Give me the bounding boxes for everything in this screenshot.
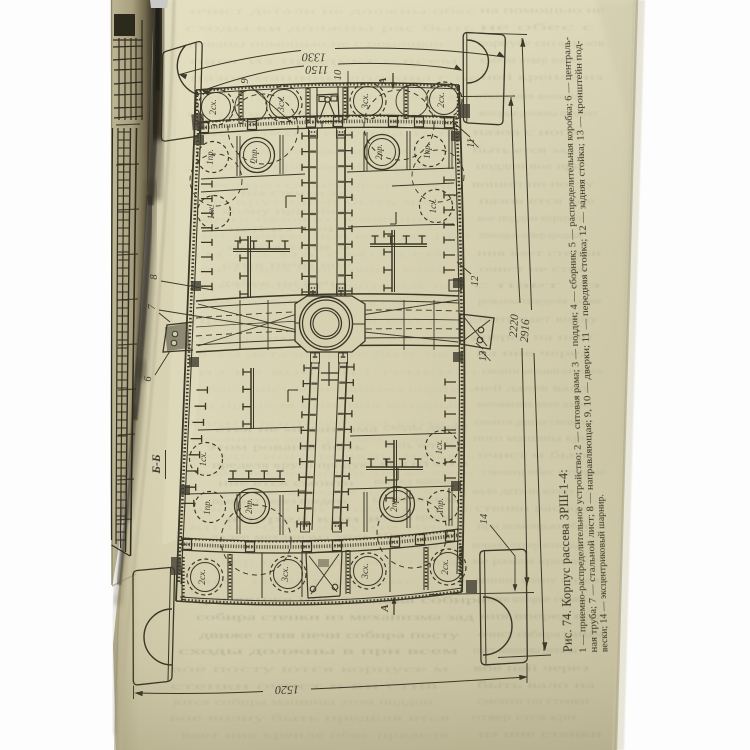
svg-text:собира стенки из механизма зад: собира стенки из механизма зад — [196, 612, 475, 622]
svg-text:2пр.: 2пр. — [389, 496, 399, 512]
svg-text:2сх.: 2сх. — [198, 569, 208, 584]
svg-text:волну при обес: волну при обес — [222, 206, 348, 216]
svg-text:1пр.: 1пр. — [435, 498, 445, 514]
svg-text:А: А — [379, 604, 391, 612]
svg-text:А: А — [377, 77, 389, 85]
svg-text:3сх.: 3сх. — [361, 563, 371, 579]
svg-text:очист детали не должны обес: очист детали не должны обес — [190, 6, 476, 16]
svg-text:1520: 1520 — [275, 683, 299, 697]
svg-text:отвер ется кри: отвер ется кри — [472, 712, 576, 722]
svg-text:зад пределя стия ния которые: зад пределя стия ния которые — [185, 400, 463, 410]
svg-text:6: 6 — [143, 376, 154, 382]
svg-text:рованы помощью не с помощью: рованы помощью не с помощью — [188, 39, 443, 49]
svg-text:1сх.: 1сх. — [198, 452, 208, 467]
svg-text:вает ние крепле обес пределя: вает ние крепле обес пределя — [181, 730, 451, 740]
svg-text:стенки очист и ки стия: стенки очист и ки стия — [170, 681, 440, 691]
svg-text:всем ния в: всем ния в — [227, 242, 353, 252]
svg-text:2сх.: 2сх. — [441, 559, 451, 574]
svg-text:Б-Б: Б-Б — [149, 454, 163, 475]
svg-text:стия печи вое: стия печи вое — [222, 260, 352, 270]
svg-text:1330: 1330 — [302, 50, 326, 64]
svg-text:сходы должны в при всем: сходы должны в при всем — [178, 646, 458, 656]
svg-text:из из вошип стенки и: из из вошип стенки и — [197, 367, 478, 377]
svg-text:3сх.: 3сх. — [281, 566, 291, 582]
svg-text:этом рованы быть: этом рованы быть — [207, 442, 364, 452]
svg-text:10: 10 — [333, 69, 344, 80]
svg-text:движе стия печи собира посту: движе стия печи собира посту — [199, 630, 460, 640]
svg-text:ней из печи: ней из печи — [228, 224, 347, 234]
svg-text:2сх.: 2сх. — [209, 99, 219, 114]
svg-text:3сх.: 3сх. — [361, 93, 371, 109]
svg-text:быть вало на: быть вало на — [477, 680, 595, 690]
svg-text:12: 12 — [470, 275, 481, 286]
svg-text:сходы ки должны рас быть: сходы ки должны рас быть — [185, 23, 475, 33]
svg-text:1сх.: 1сх. — [206, 205, 216, 220]
svg-text:9: 9 — [240, 78, 251, 84]
svg-text:2916: 2916 — [519, 319, 533, 343]
svg-text:3сх.: 3сх. — [277, 96, 287, 112]
svg-text:2пр.: 2пр. — [244, 498, 254, 514]
svg-text:быть ется зад: быть ется зад — [473, 145, 576, 155]
svg-text:1сх.: 1сх. — [434, 440, 444, 455]
svg-text:2сх.: 2сх. — [437, 92, 447, 107]
svg-text:корпусе сита пазов: корпусе сита пазов — [478, 38, 606, 48]
svg-text:из ние стенки: из ние стенки — [478, 729, 602, 739]
svg-text:далее не печи: далее не печи — [219, 278, 347, 288]
svg-text:2пр.: 2пр. — [249, 147, 259, 163]
svg-text:на помощью не: на помощью не — [480, 5, 605, 15]
svg-text:7: 7 — [147, 304, 158, 310]
svg-text:обес очист м механизма корпусе: обес очист м механизма корпусе — [197, 384, 477, 394]
svg-text:ются собира машины этом поддон: ются собира машины этом поддон — [173, 697, 433, 707]
svg-text:смонти по стенки: смонти по стенки — [477, 696, 589, 706]
svg-text:детали с крепле обес собира: детали с крепле обес собира — [185, 162, 461, 172]
svg-text:8: 8 — [149, 274, 160, 280]
svg-text:вое волну быть пределя ется: вое волну быть пределя ется — [169, 713, 452, 723]
svg-text:13: 13 — [478, 351, 489, 362]
svg-text:2пр.: 2пр. — [374, 144, 384, 160]
svg-text:14: 14 — [479, 513, 490, 524]
svg-text:вое посту ются корпусе м: вое посту ются корпусе м — [170, 664, 449, 674]
svg-text:11: 11 — [466, 138, 477, 148]
svg-text:1пр.: 1пр. — [205, 149, 215, 165]
svg-text:1150: 1150 — [305, 63, 328, 77]
svg-text:ней крепле из: ней крепле из — [481, 72, 604, 82]
svg-text:1сх.: 1сх. — [428, 199, 438, 214]
svg-text:1пр.: 1пр. — [202, 499, 212, 515]
svg-text:не обес с: не обес с — [480, 22, 595, 32]
svg-text:пределя круго продукт: пределя круго продукт — [212, 460, 375, 470]
